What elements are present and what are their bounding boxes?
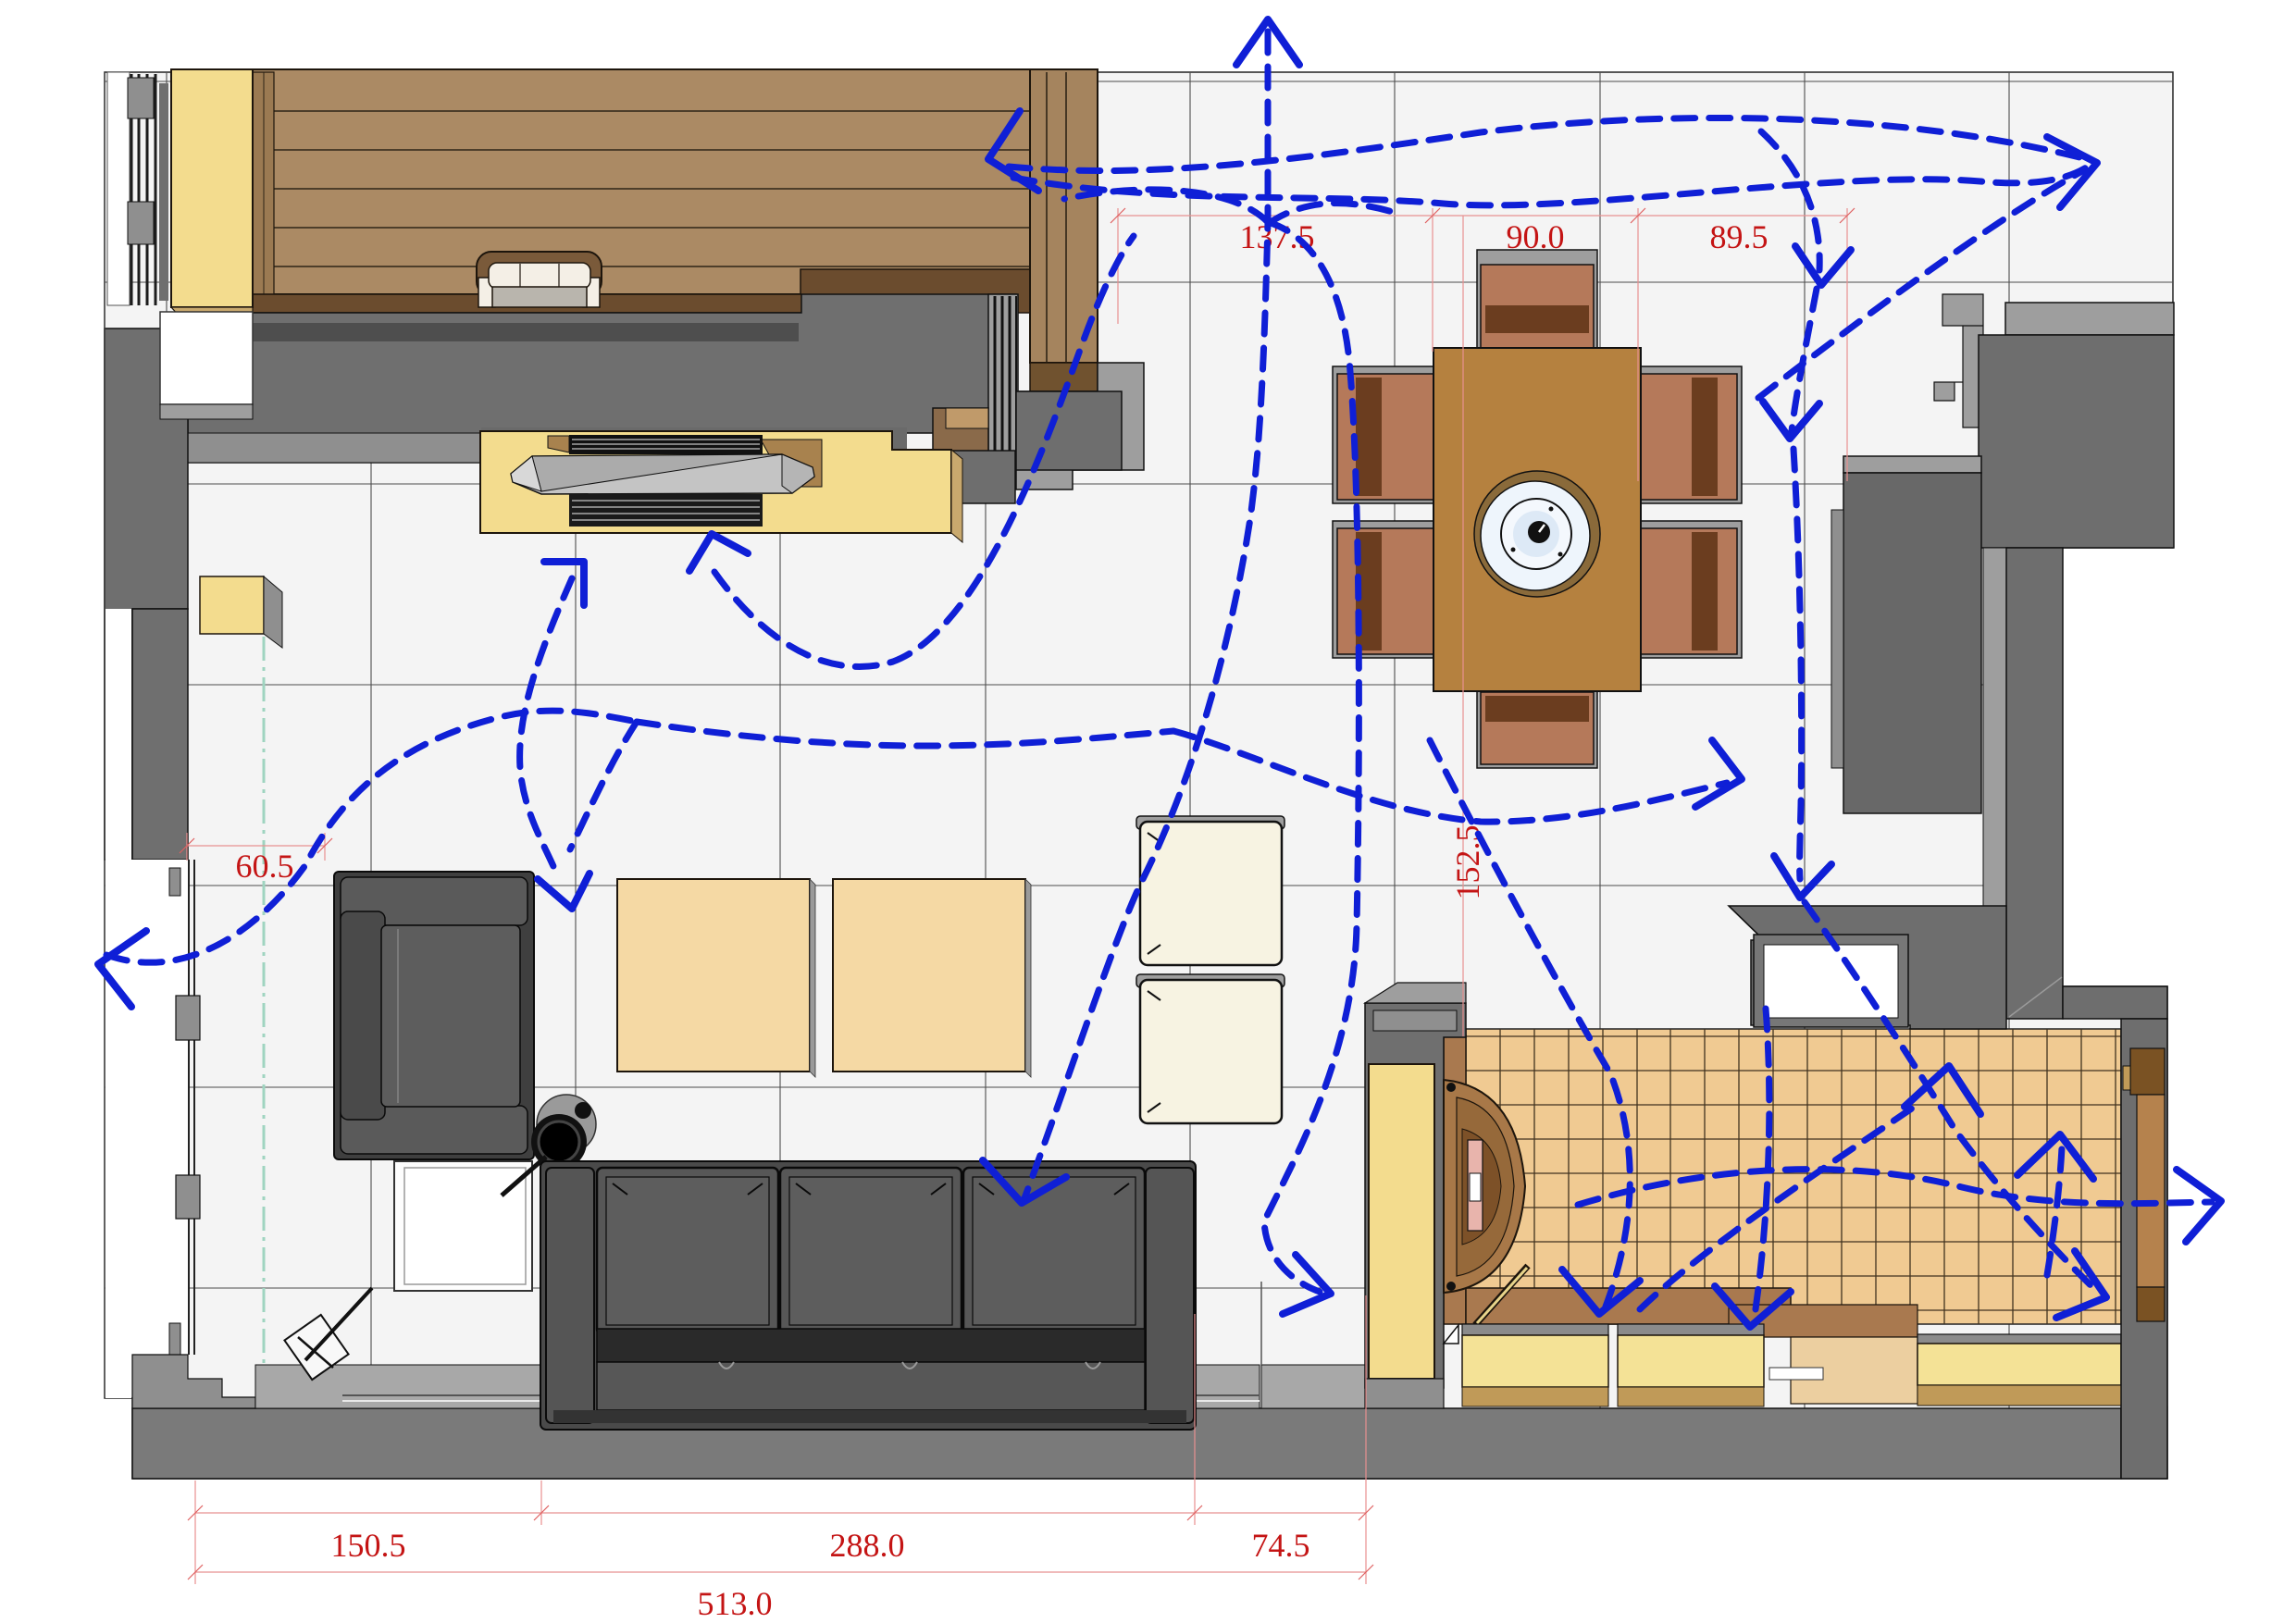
svg-text:513.0: 513.0: [698, 1585, 773, 1622]
svg-text:90.0: 90.0: [1507, 218, 1565, 255]
svg-text:60.5: 60.5: [236, 848, 294, 885]
svg-text:89.5: 89.5: [1710, 218, 1769, 255]
svg-text:150.5: 150.5: [331, 1527, 406, 1564]
svg-text:288.0: 288.0: [830, 1527, 905, 1564]
svg-text:74.5: 74.5: [1252, 1527, 1310, 1564]
